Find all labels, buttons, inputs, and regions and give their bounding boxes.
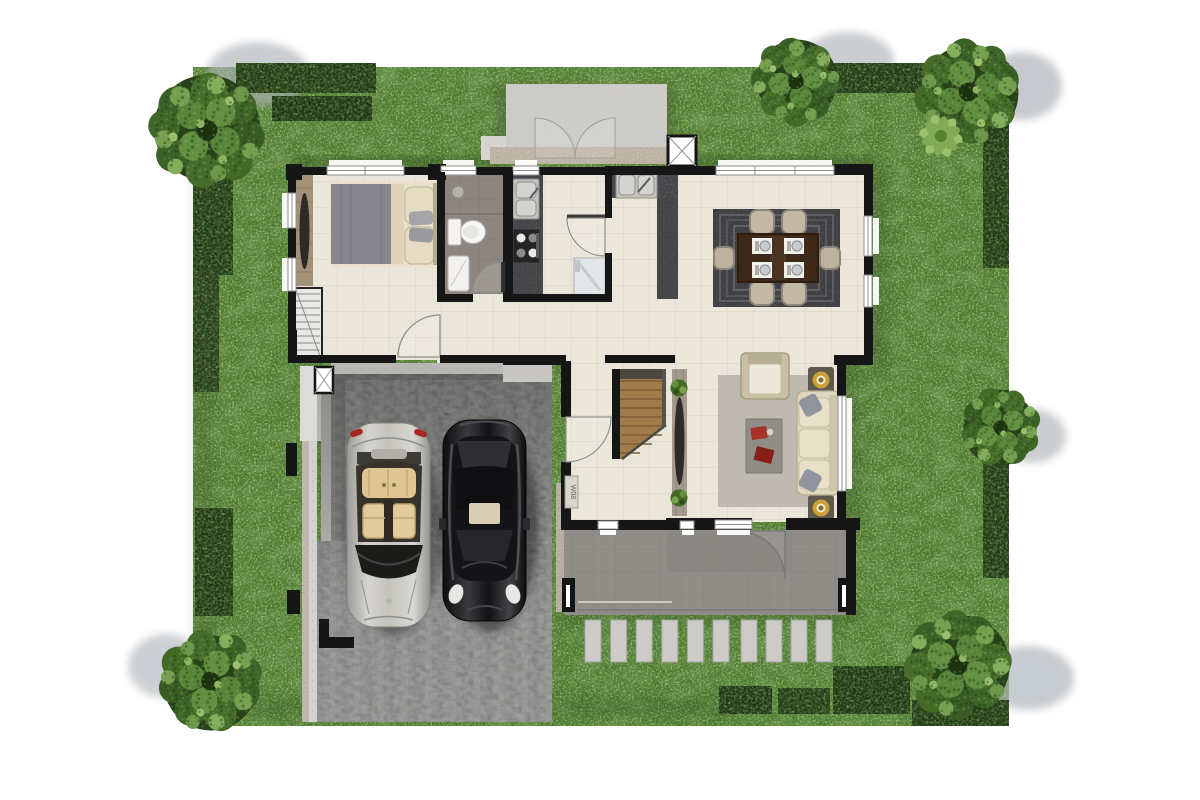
svg-text:W08: W08 <box>569 485 576 500</box>
